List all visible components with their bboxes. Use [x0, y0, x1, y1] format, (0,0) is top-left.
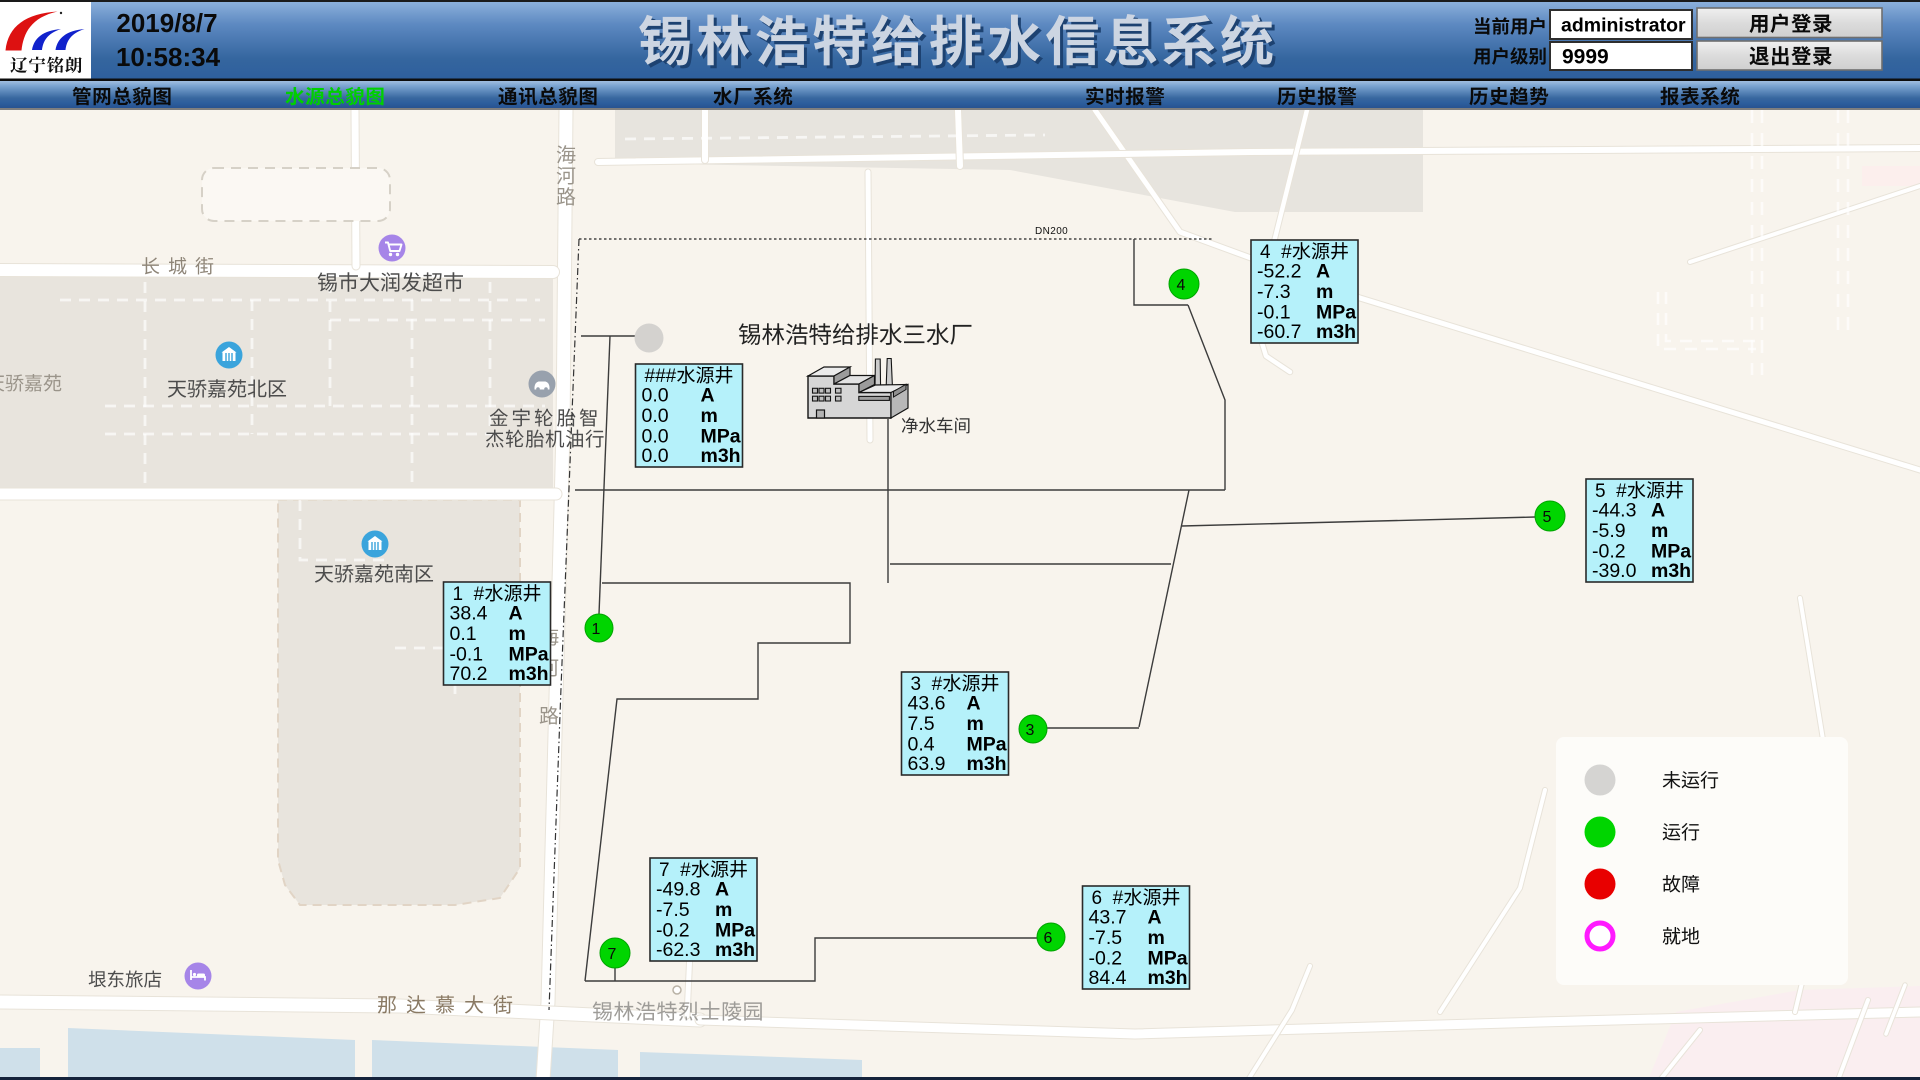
svg-text:m: m [701, 405, 718, 427]
svg-text:-52.2: -52.2 [1257, 261, 1301, 283]
svg-text:A: A [509, 603, 523, 625]
svg-text:4: 4 [1177, 277, 1186, 294]
svg-text:m3h: m3h [1148, 967, 1188, 989]
svg-text:m3h: m3h [715, 939, 755, 961]
svg-text:9999: 9999 [1562, 46, 1609, 69]
svg-text:0.0: 0.0 [642, 405, 669, 427]
svg-text:10:58:34: 10:58:34 [116, 42, 221, 72]
svg-text:m: m [1651, 520, 1668, 542]
svg-text:38.4: 38.4 [450, 603, 488, 625]
svg-text:43.6: 43.6 [908, 693, 946, 715]
svg-text:-44.3: -44.3 [1592, 500, 1636, 522]
svg-text:3: 3 [1026, 722, 1035, 739]
svg-text:m3h: m3h [701, 445, 741, 467]
svg-text:m3h: m3h [1651, 560, 1691, 582]
svg-text:0.0: 0.0 [642, 385, 669, 407]
svg-text:0.0: 0.0 [642, 445, 669, 467]
svg-text:-7.3: -7.3 [1257, 281, 1291, 303]
svg-text:7.5: 7.5 [908, 713, 935, 735]
svg-text:DN200: DN200 [1035, 226, 1068, 237]
svg-text:-7.5: -7.5 [656, 899, 690, 921]
svg-text:A: A [1148, 907, 1162, 929]
svg-text:A: A [701, 385, 715, 407]
svg-text:2019/8/7: 2019/8/7 [116, 8, 217, 38]
svg-text:-39.0: -39.0 [1592, 560, 1637, 582]
svg-text:m: m [1148, 927, 1165, 949]
svg-text:m: m [509, 623, 526, 645]
svg-text:84.4: 84.4 [1089, 967, 1127, 989]
svg-text:43.7: 43.7 [1089, 907, 1127, 929]
svg-text:A: A [715, 879, 729, 901]
svg-text:-49.8: -49.8 [656, 879, 700, 901]
svg-text:m3h: m3h [509, 663, 549, 685]
svg-text:m: m [715, 899, 732, 921]
svg-text:m: m [967, 713, 984, 735]
svg-text:A: A [1651, 500, 1665, 522]
svg-text:7: 7 [608, 946, 617, 963]
svg-text:A: A [1316, 261, 1330, 283]
svg-text:6: 6 [1044, 930, 1053, 947]
svg-text:A: A [967, 693, 981, 715]
svg-text:-60.7: -60.7 [1257, 321, 1301, 343]
svg-text:-62.3: -62.3 [656, 939, 700, 961]
svg-text:m3h: m3h [1316, 321, 1356, 343]
svg-text:-7.5: -7.5 [1089, 927, 1123, 949]
svg-text:administrator: administrator [1561, 15, 1686, 37]
svg-text:5: 5 [1543, 509, 1552, 526]
svg-text:63.9: 63.9 [908, 753, 946, 775]
svg-text:0.1: 0.1 [450, 623, 477, 645]
svg-text:1: 1 [592, 621, 601, 638]
svg-text:m: m [1316, 281, 1333, 303]
svg-text:-5.9: -5.9 [1592, 520, 1626, 542]
svg-text:70.2: 70.2 [450, 663, 488, 685]
svg-text:m3h: m3h [967, 753, 1007, 775]
